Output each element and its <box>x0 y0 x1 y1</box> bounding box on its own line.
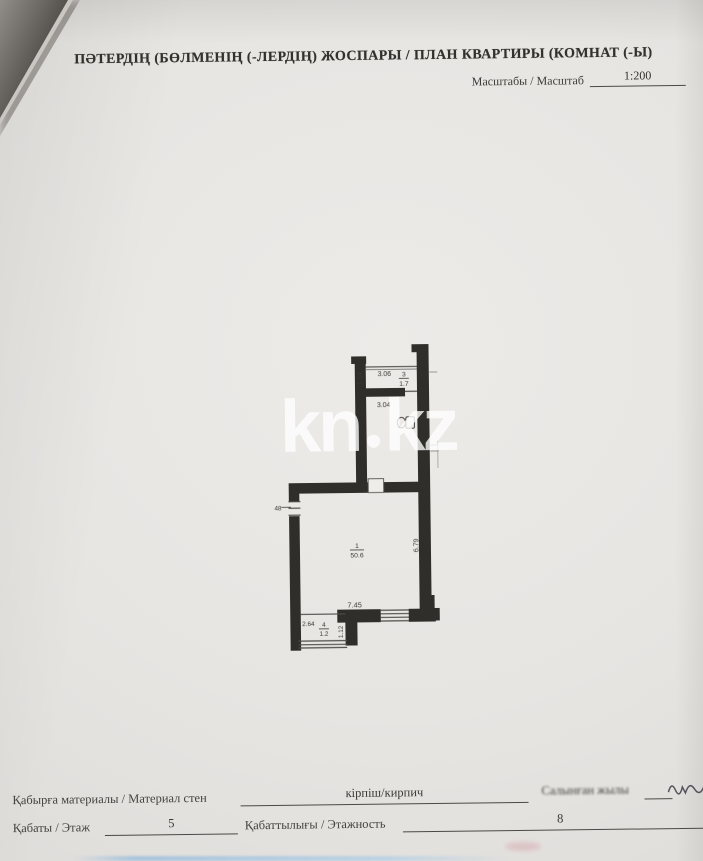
room1-area: 50.6 <box>350 552 364 559</box>
kn-kz-watermark: knkz <box>279 388 456 470</box>
watermark-dot-icon <box>367 435 380 448</box>
dim-main-height: 6.79 <box>413 538 420 552</box>
room1-number: 1 <box>355 543 359 550</box>
floor-value: 5 <box>105 815 238 836</box>
dim-room4-width: 2.64 <box>302 621 315 628</box>
photographed-document-page: ПӘТЕРДІҢ (БӨЛМЕНІҢ (-ЛЕРДІҢ) ЖОСПАРЫ / П… <box>0 0 703 861</box>
room3-number: 3 <box>402 371 406 378</box>
room4-area: 1.2 <box>320 631 329 638</box>
built-year-label: Салынған жылы <box>541 783 629 799</box>
room4-number: 4 <box>322 622 326 629</box>
floor-label: Қабаты / Этаж <box>13 820 90 836</box>
wall-material-value: кірпіш/кирпич <box>240 784 528 807</box>
bottom-blue-artifact <box>72 856 512 861</box>
watermark-kn: kn <box>279 384 360 468</box>
total-floors-value: 8 <box>403 810 703 833</box>
dim-room4-height: 1.12 <box>338 625 345 638</box>
handwritten-year-fragment <box>666 775 703 800</box>
door-opening <box>368 479 384 493</box>
paper-content: ПӘТЕРДІҢ (БӨЛМЕНІҢ (-ЛЕРДІҢ) ЖОСПАРЫ / П… <box>0 0 703 861</box>
window-mark: 48 <box>274 505 282 512</box>
total-floors-label: Қабаттылығы / Этажность <box>245 817 386 834</box>
dim-room3-width: 3.06 <box>377 371 391 378</box>
dim-main-width: 7.45 <box>347 600 361 609</box>
wall-material-label: Қабырға материалы / Материал стен <box>12 791 206 808</box>
watermark-kz: kz <box>384 383 457 467</box>
pink-smudge-artifact <box>505 842 541 851</box>
